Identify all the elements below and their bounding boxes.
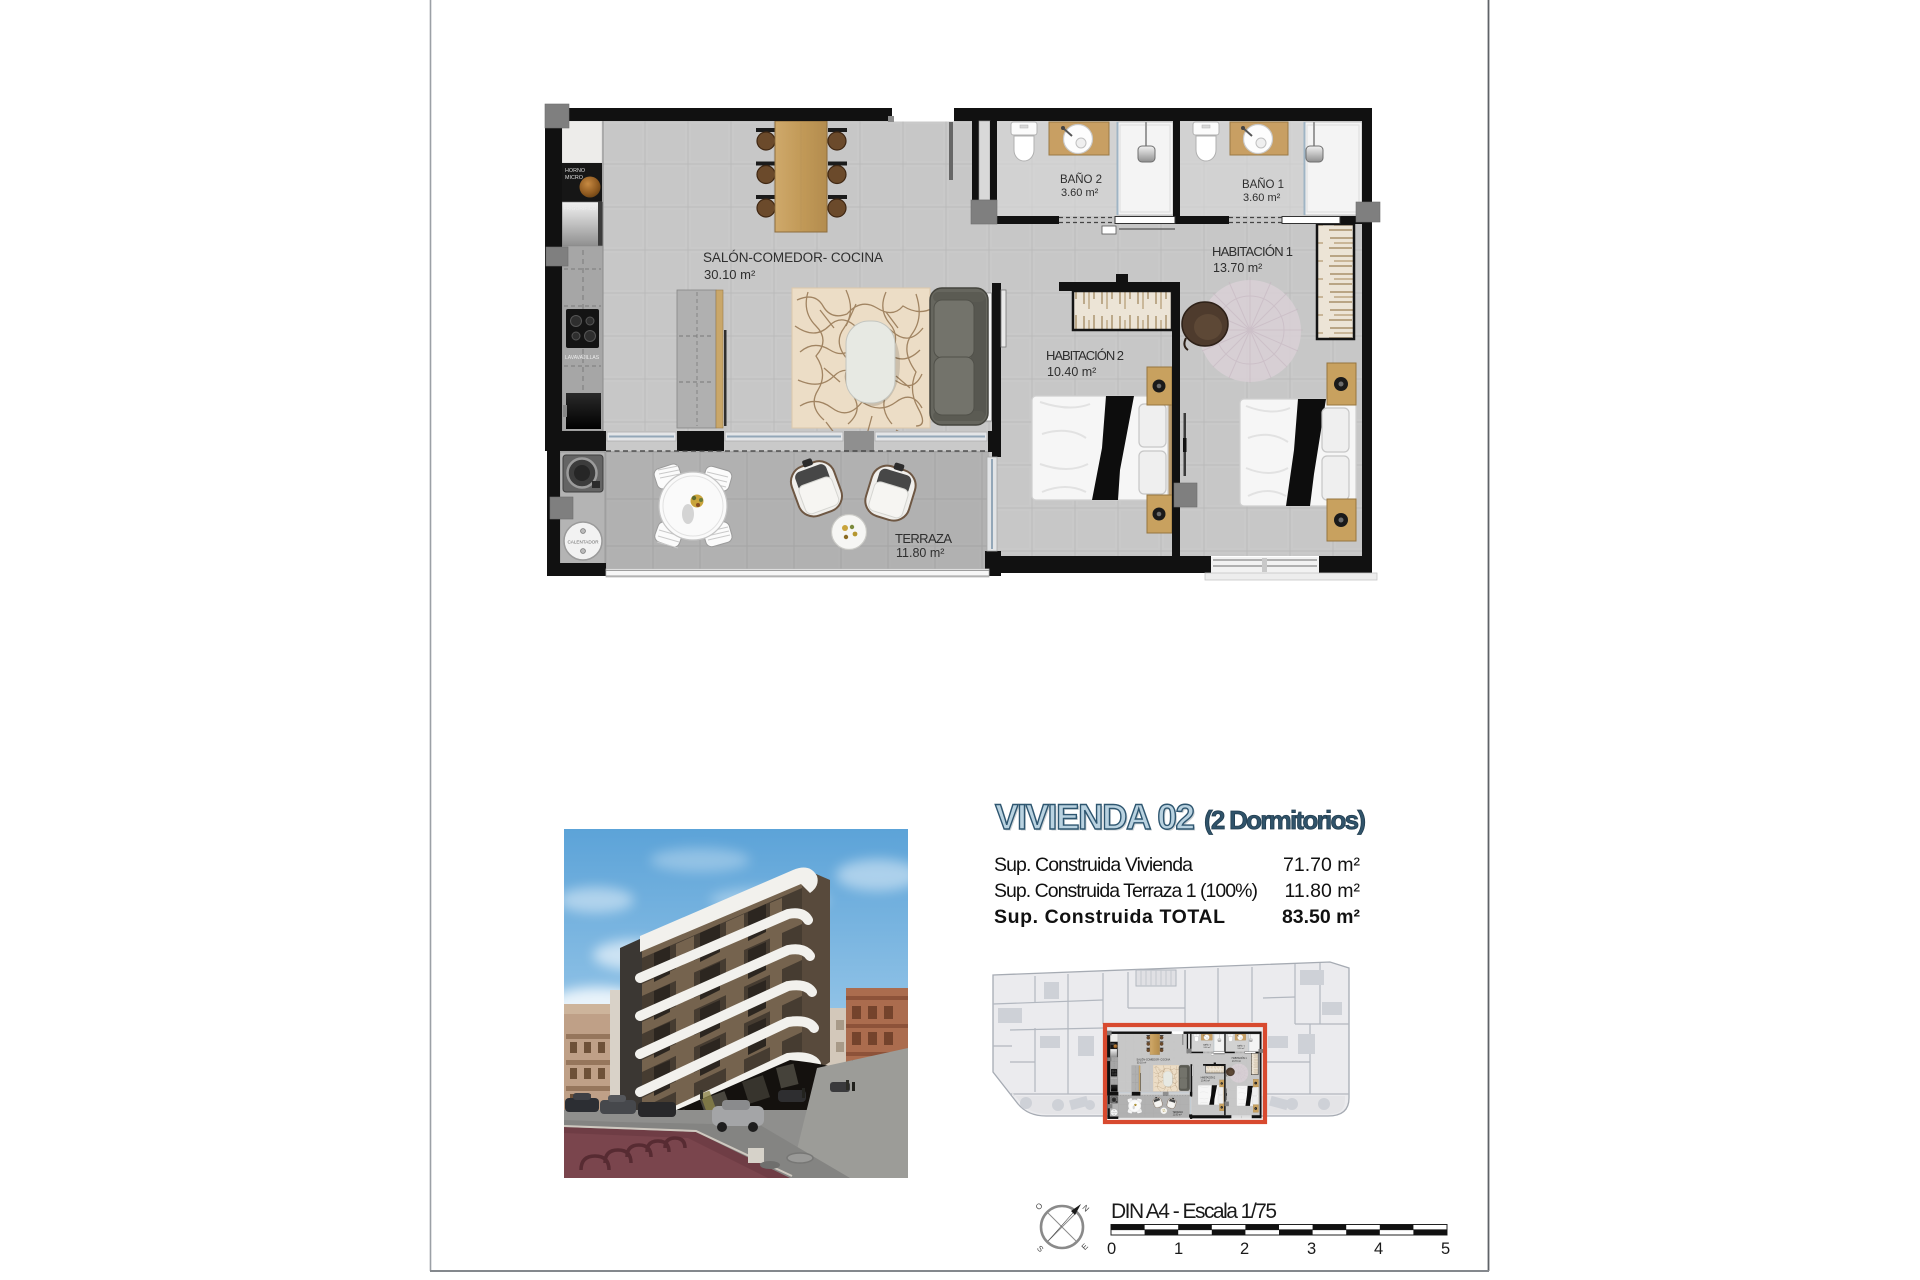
svg-text:MICRO: MICRO: [565, 175, 583, 181]
svg-text:BAÑO 1: BAÑO 1: [1242, 178, 1284, 191]
svg-text:Sup. Construida TOTAL: Sup. Construida TOTAL: [994, 906, 1225, 928]
svg-text:30.10 m²: 30.10 m²: [704, 267, 756, 282]
svg-text:HABITACIÓN 2: HABITACIÓN 2: [1046, 348, 1124, 363]
svg-text:(2 Dormitorios): (2 Dormitorios): [1204, 805, 1366, 835]
svg-text:4: 4: [1374, 1240, 1383, 1258]
svg-text:Sup. Construida Terraza 1 (100: Sup. Construida Terraza 1 (100%): [994, 880, 1258, 902]
svg-text:11.80 m²: 11.80 m²: [1284, 880, 1360, 902]
svg-text:11.80 m²: 11.80 m²: [896, 546, 944, 560]
svg-text:Sup. Construida Vivienda: Sup. Construida Vivienda: [994, 854, 1193, 876]
svg-text:13.70 m²: 13.70 m²: [1213, 261, 1262, 275]
svg-text:3.60 m²: 3.60 m²: [1243, 192, 1281, 204]
svg-text:HABITACIÓN 1: HABITACIÓN 1: [1212, 244, 1293, 259]
svg-text:71.70 m²: 71.70 m²: [1283, 854, 1360, 876]
svg-text:2: 2: [1240, 1240, 1249, 1258]
svg-text:DIN A4 - Escala 1/75: DIN A4 - Escala 1/75: [1111, 1200, 1277, 1223]
svg-text:10.40 m²: 10.40 m²: [1047, 365, 1096, 379]
svg-text:83.50 m²: 83.50 m²: [1282, 906, 1361, 928]
svg-text:0: 0: [1107, 1240, 1116, 1258]
svg-text:5: 5: [1441, 1240, 1450, 1258]
svg-text:FRIGORIFICO: FRIGORIFICO: [564, 206, 597, 212]
svg-text:VIVIENDA 02: VIVIENDA 02: [995, 798, 1195, 837]
svg-text:TERRAZA: TERRAZA: [895, 531, 952, 546]
svg-text:3: 3: [1307, 1240, 1316, 1258]
svg-text:HORNO: HORNO: [565, 168, 585, 174]
svg-text:BAÑO 2: BAÑO 2: [1060, 173, 1102, 186]
svg-text:CALENTADOR: CALENTADOR: [567, 540, 599, 545]
svg-text:3.60 m²: 3.60 m²: [1061, 187, 1099, 199]
svg-text:LAVAVAJILLAS: LAVAVAJILLAS: [565, 355, 600, 361]
svg-text:1: 1: [1174, 1240, 1183, 1258]
svg-text:SALÓN-COMEDOR- COCINA: SALÓN-COMEDOR- COCINA: [703, 250, 883, 265]
